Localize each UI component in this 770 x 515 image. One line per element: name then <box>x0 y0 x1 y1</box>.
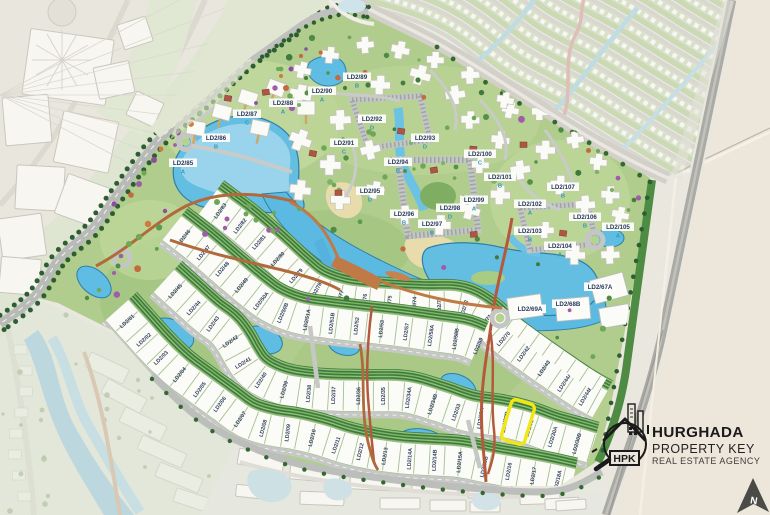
svg-text:B: B <box>355 84 359 90</box>
svg-text:D: D <box>368 198 372 204</box>
svg-text:B: B <box>214 145 218 151</box>
svg-text:LD2/105: LD2/105 <box>606 224 630 231</box>
svg-text:LD2/88: LD2/88 <box>273 100 294 107</box>
svg-text:B: B <box>528 238 532 244</box>
svg-text:LD2/90: LD2/90 <box>312 88 333 95</box>
svg-text:LD2/37: LD2/37 <box>331 386 338 404</box>
svg-text:LD2/95: LD2/95 <box>360 188 381 195</box>
svg-text:B: B <box>583 224 587 230</box>
svg-text:LD2/36: LD2/36 <box>356 387 362 405</box>
svg-text:LD2/85: LD2/85 <box>173 160 194 167</box>
svg-text:LD2/98: LD2/98 <box>440 205 461 212</box>
svg-text:LD2/67A: LD2/67A <box>588 284 613 291</box>
svg-text:LD2/93: LD2/93 <box>415 135 436 142</box>
svg-text:LD2/86: LD2/86 <box>206 135 227 142</box>
svg-text:LD2/96: LD2/96 <box>394 211 415 218</box>
svg-text:LD2/97: LD2/97 <box>422 221 443 228</box>
svg-text:LD2/100: LD2/100 <box>468 151 492 158</box>
svg-text:HPK: HPK <box>613 453 636 465</box>
svg-text:LD2/94: LD2/94 <box>388 159 409 166</box>
svg-text:LD2/101: LD2/101 <box>488 174 512 181</box>
svg-text:LD2/87: LD2/87 <box>237 111 258 118</box>
svg-text:LD2/106: LD2/106 <box>573 214 597 221</box>
svg-text:LD2/104: LD2/104 <box>548 243 572 250</box>
svg-text:D: D <box>423 145 427 151</box>
svg-text:LD2/91: LD2/91 <box>334 140 355 147</box>
svg-text:LD2/103: LD2/103 <box>518 228 542 235</box>
svg-text:B: B <box>402 221 406 227</box>
svg-text:B: B <box>430 231 434 237</box>
svg-text:B: B <box>498 184 502 190</box>
svg-text:D: D <box>448 215 452 221</box>
svg-text:LD2/107: LD2/107 <box>551 184 575 191</box>
svg-text:LD2/92: LD2/92 <box>362 116 383 123</box>
svg-text:LD2/102: LD2/102 <box>518 201 542 208</box>
svg-text:LD2/68B: LD2/68B <box>556 301 581 308</box>
svg-text:PROPERTY KEY: PROPERTY KEY <box>652 442 755 456</box>
svg-text:LD2/89: LD2/89 <box>347 74 368 81</box>
svg-text:LD2/69A: LD2/69A <box>518 306 543 313</box>
svg-text:D: D <box>370 126 374 132</box>
svg-text:LD2/99: LD2/99 <box>464 197 485 204</box>
svg-text:B: B <box>396 169 400 175</box>
svg-text:LD2/35: LD2/35 <box>381 387 387 405</box>
svg-text:LD2/14B: LD2/14B <box>432 449 439 471</box>
svg-text:REAL ESTATE AGENCY: REAL ESTATE AGENCY <box>652 456 760 466</box>
svg-text:HURGHADA: HURGHADA <box>652 424 744 441</box>
svg-text:B: B <box>561 194 565 200</box>
